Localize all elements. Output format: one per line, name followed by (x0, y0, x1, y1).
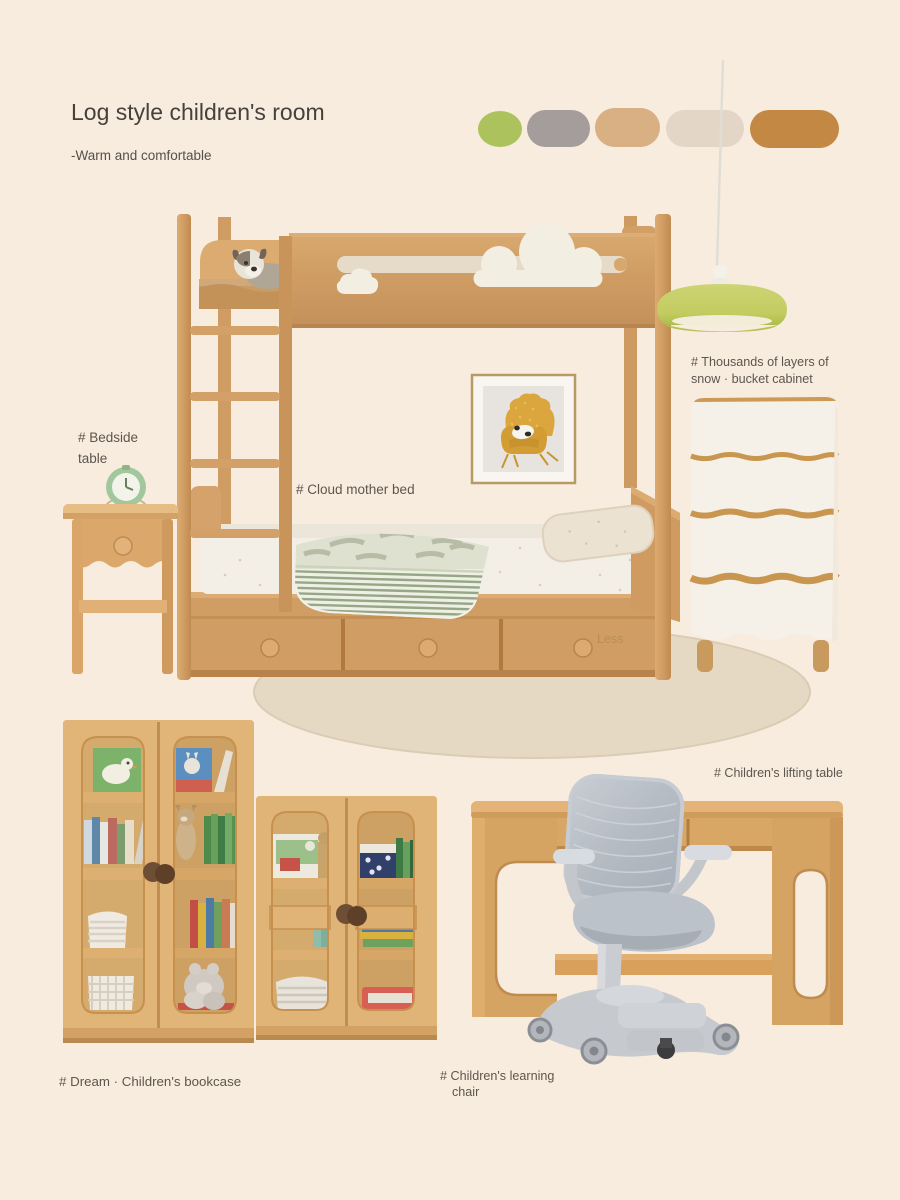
svg-text:Log style children's room: Log style children's room (71, 99, 325, 125)
svg-text:Less: Less (597, 632, 623, 646)
svg-text:table: table (78, 451, 107, 466)
svg-text:chair: chair (452, 1085, 479, 1099)
svg-text:# Bedside: # Bedside (78, 430, 138, 445)
svg-text:# Dream · Children's bookcase: # Dream · Children's bookcase (59, 1074, 241, 1089)
svg-text:-Warm and comfortable: -Warm and comfortable (71, 148, 212, 163)
svg-text:snow · bucket cabinet: snow · bucket cabinet (691, 372, 813, 386)
svg-text:# Children's lifting table: # Children's lifting table (714, 766, 843, 780)
svg-text:# Cloud mother bed: # Cloud mother bed (296, 482, 415, 497)
svg-text:# Thousands of layers of: # Thousands of layers of (691, 355, 829, 369)
svg-text:# Children's learning: # Children's learning (440, 1069, 554, 1083)
